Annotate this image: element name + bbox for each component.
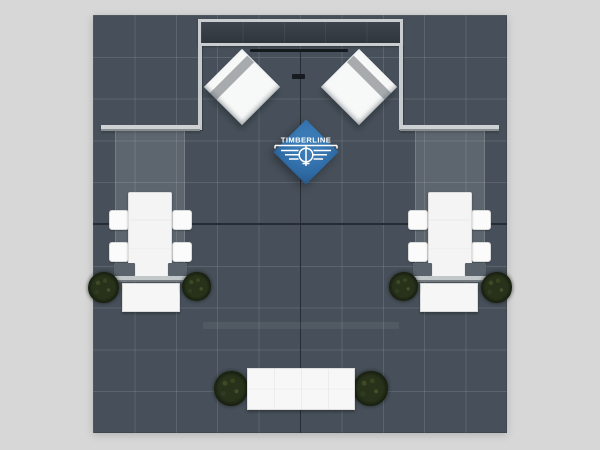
chair bbox=[408, 210, 428, 230]
floor-light-reflection bbox=[203, 322, 399, 329]
left-fabric-tower bbox=[204, 49, 280, 125]
logo-emblem bbox=[275, 146, 337, 167]
booth-floor: TIMBERLINE bbox=[93, 15, 507, 433]
left-support-post bbox=[198, 45, 202, 130]
chair bbox=[109, 210, 129, 230]
front-reception-counter bbox=[247, 368, 355, 410]
chair-block bbox=[413, 263, 432, 276]
right-shelf-bar bbox=[411, 276, 489, 282]
chair bbox=[172, 210, 192, 230]
planter bbox=[353, 371, 388, 406]
chair bbox=[408, 242, 428, 262]
chair bbox=[172, 242, 192, 262]
planter bbox=[389, 272, 418, 301]
chair-block bbox=[114, 263, 135, 276]
left-storage-counter bbox=[122, 283, 180, 312]
planter bbox=[214, 371, 248, 406]
right-support-post bbox=[399, 45, 403, 130]
booth-render-canvas: TIMBERLINE bbox=[0, 0, 600, 450]
chair bbox=[471, 210, 491, 230]
chair-block bbox=[465, 263, 486, 276]
truss-bar bbox=[250, 49, 348, 52]
right-storage-counter bbox=[420, 283, 478, 312]
planter bbox=[182, 272, 211, 301]
timberline-logo-icon: TIMBERLINE bbox=[269, 133, 343, 173]
truss-center-bracket bbox=[292, 74, 305, 79]
back-header-frame bbox=[198, 19, 403, 46]
chair-block bbox=[168, 263, 187, 276]
planter bbox=[481, 272, 512, 303]
brand-name: TIMBERLINE bbox=[281, 136, 331, 145]
left-shelf-bar bbox=[111, 276, 189, 282]
chair bbox=[109, 242, 129, 262]
planter bbox=[88, 272, 119, 303]
chair bbox=[471, 242, 491, 262]
right-fabric-tower bbox=[321, 49, 397, 125]
